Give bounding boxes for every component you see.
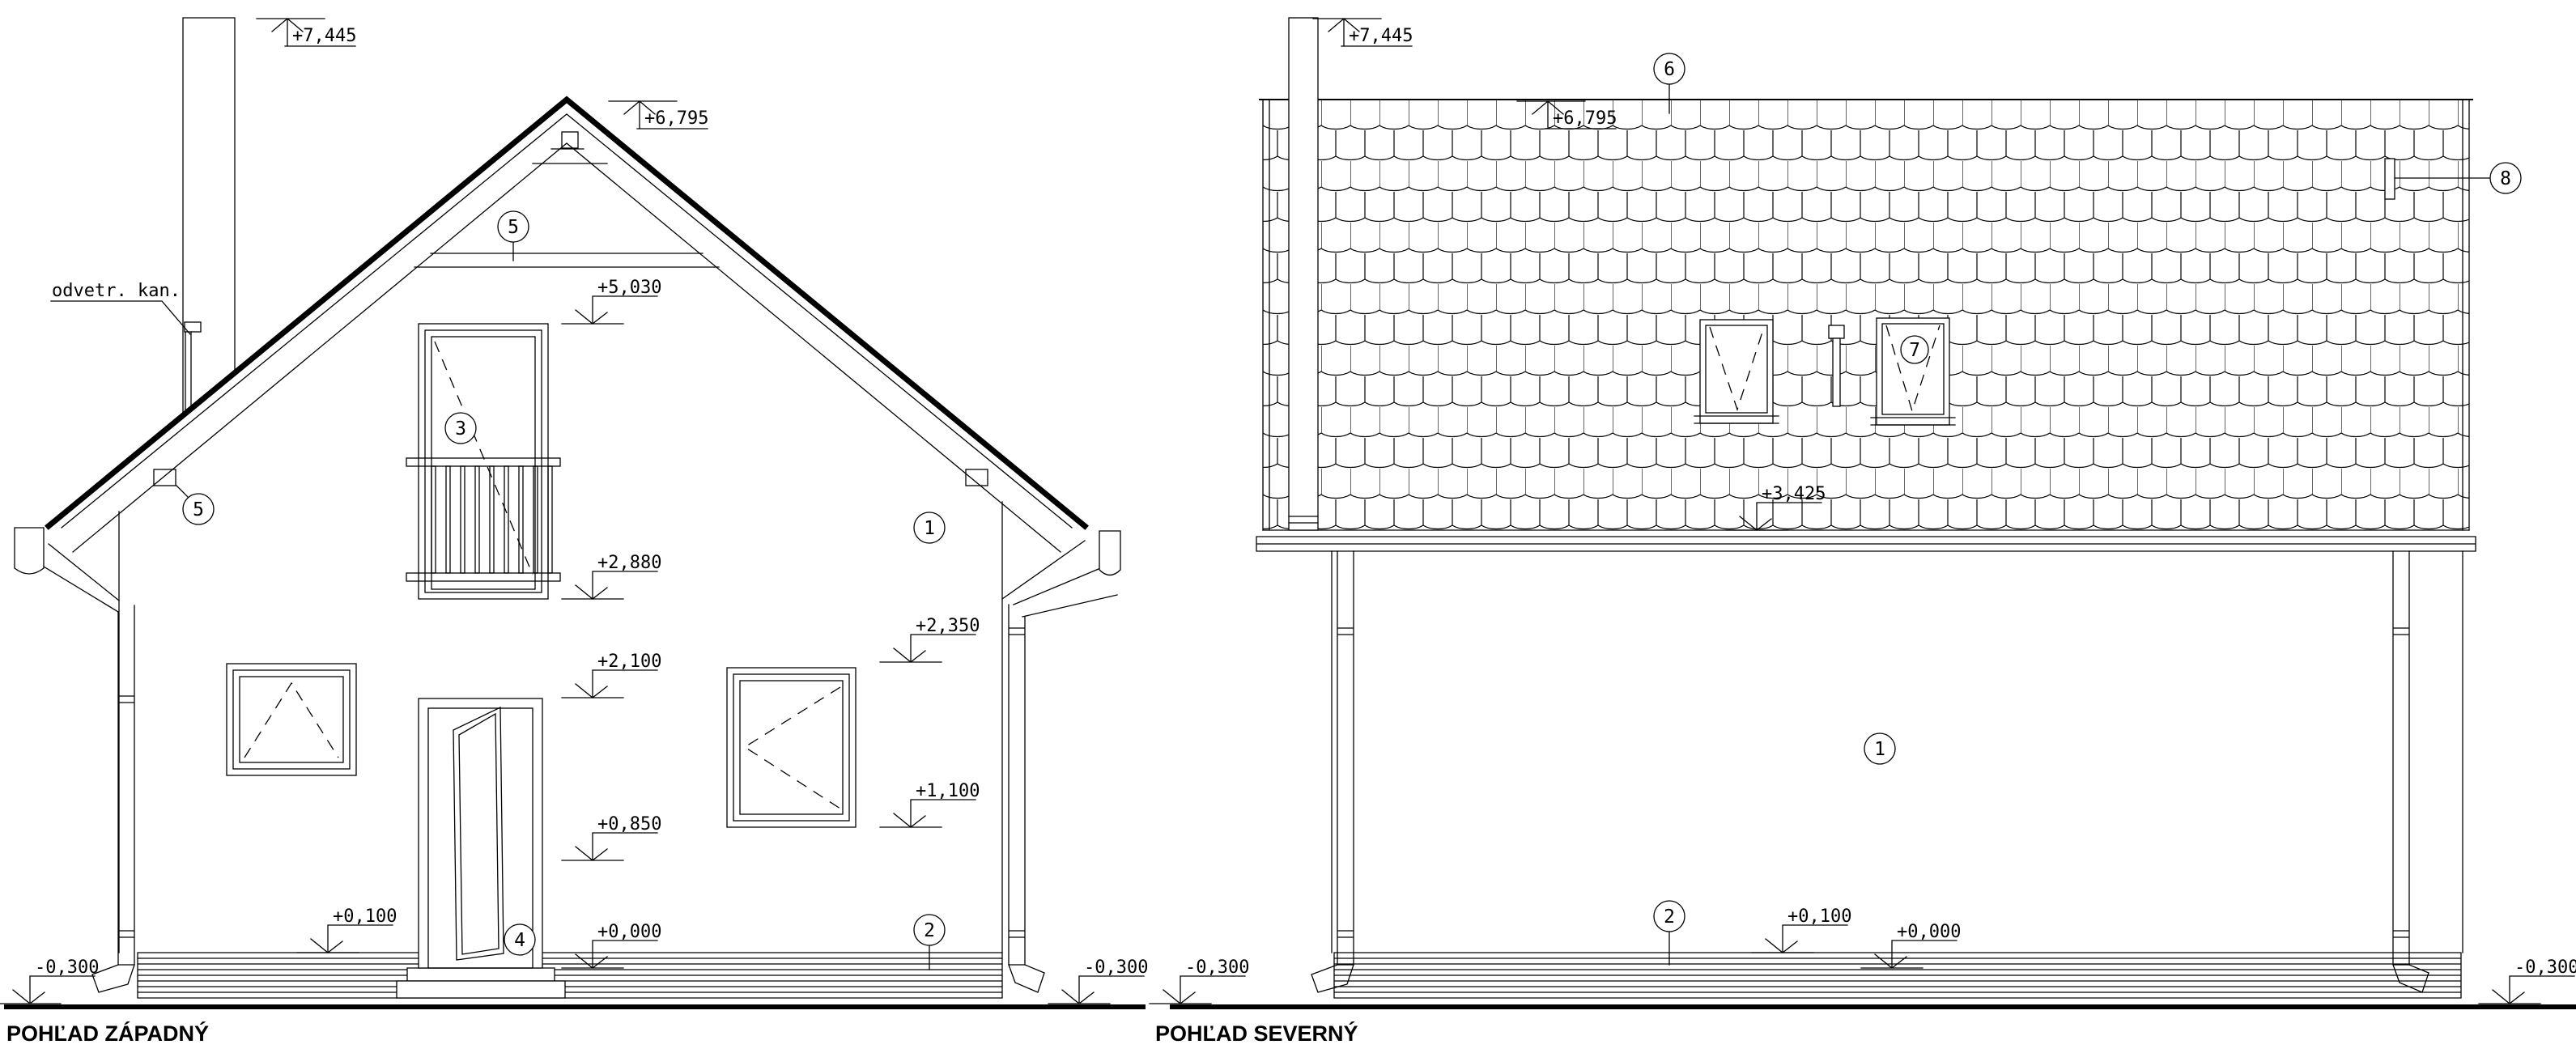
west-chimney — [183, 18, 235, 416]
downpipe-shoe — [1009, 965, 1044, 992]
callout-number: 3 — [455, 418, 466, 439]
north-roof — [1259, 100, 2473, 530]
north-title: POHĽAD SEVERNÝ — [1155, 1021, 1358, 1046]
north-wall-callout: 1 — [1864, 733, 1895, 764]
west-balcony-door: 3 — [406, 324, 560, 599]
level-label: +2,100 — [597, 652, 661, 672]
level-label: -0,300 — [35, 957, 99, 978]
callout-number: 4 — [514, 930, 525, 951]
west-level-markers: +7,445 +6,795 +5,030 +2,880 +2,100 +0,85… — [0, 19, 1148, 1004]
north-right-downpipe — [2393, 551, 2429, 992]
door-step-lower — [397, 981, 565, 998]
level-label: +2,880 — [597, 553, 661, 573]
callout-number: 5 — [193, 499, 204, 520]
north-roof-window-right: 7 — [1871, 318, 1955, 425]
level-label: -0,300 — [2514, 957, 2576, 978]
west-wall-callout: 1 — [914, 512, 945, 543]
level-label: +0,100 — [1787, 907, 1851, 927]
west-walls — [119, 502, 1002, 953]
west-entry-door: 4 — [397, 698, 565, 998]
level-label: -0,300 — [1185, 957, 1249, 978]
level-label: +7,445 — [292, 26, 356, 46]
west-snow-guards: 5 — [154, 469, 988, 524]
level-label: -0,300 — [1084, 957, 1148, 978]
callout-number: 5 — [508, 217, 519, 238]
balcony-railing — [406, 458, 560, 581]
level-label: +2,350 — [916, 616, 980, 636]
north-chimney — [1289, 18, 1318, 530]
callout-number: 6 — [1664, 59, 1675, 80]
door-step-upper — [407, 968, 555, 981]
level-label: +0,000 — [597, 922, 661, 942]
north-plinth-callout: 2 — [1654, 901, 1685, 965]
level-label: +7,445 — [1349, 26, 1413, 46]
downpipe-shoe — [2393, 965, 2429, 992]
west-plinth-callout: 2 — [914, 915, 945, 970]
level-label: +5,030 — [597, 278, 661, 298]
north-fascia-gutter — [1256, 537, 2476, 551]
callout-leader — [176, 486, 188, 497]
west-window-right — [727, 668, 856, 827]
level-label: +1,100 — [916, 781, 980, 801]
callout-number: 2 — [1664, 907, 1675, 928]
west-left-gutter-downpipe — [15, 528, 134, 992]
level-label: +0,850 — [597, 814, 661, 834]
level-label: +0,000 — [1897, 922, 1961, 942]
vent-duct-text: odvetr. kan. — [52, 281, 181, 301]
west-elevation: 5 5 — [0, 18, 1148, 1046]
elevations-canvas: 5 5 — [0, 0, 2576, 1053]
level-label: +6,795 — [1553, 108, 1617, 129]
north-roof-window-left — [1694, 320, 1779, 423]
callout-number: 7 — [1909, 340, 1920, 361]
north-left-downpipe — [1311, 551, 1354, 992]
west-window-left — [227, 664, 356, 775]
callout-number: 1 — [924, 518, 935, 539]
opening-direction-dash — [244, 683, 338, 758]
level-label: +6,795 — [644, 108, 708, 129]
level-label: +3,425 — [1762, 484, 1826, 504]
shingle-field — [1263, 100, 2469, 530]
callout-number: 8 — [2500, 168, 2511, 189]
callout-number: 2 — [924, 920, 935, 941]
west-title: POHĽAD ZÁPADNÝ — [6, 1021, 209, 1046]
north-elevation: 7 8 6 — [1150, 18, 2576, 1046]
west-vent-duct-label: odvetr. kan. — [51, 281, 190, 334]
west-roof — [49, 100, 1085, 552]
level-label: +0,100 — [333, 907, 397, 927]
blueprint-sheet: 5 5 — [0, 0, 2576, 1053]
callout-number: 1 — [1874, 739, 1885, 760]
west-right-gutter-downpipe — [1002, 531, 1120, 992]
west-collar-tie: 5 — [414, 211, 719, 267]
west-plinth — [138, 953, 1002, 998]
downpipe-shoe — [1311, 965, 1354, 992]
north-plinth — [1334, 953, 2461, 998]
opening-direction-dash — [745, 687, 840, 809]
snow-guard-left — [154, 469, 176, 486]
north-walls — [1332, 551, 2463, 953]
